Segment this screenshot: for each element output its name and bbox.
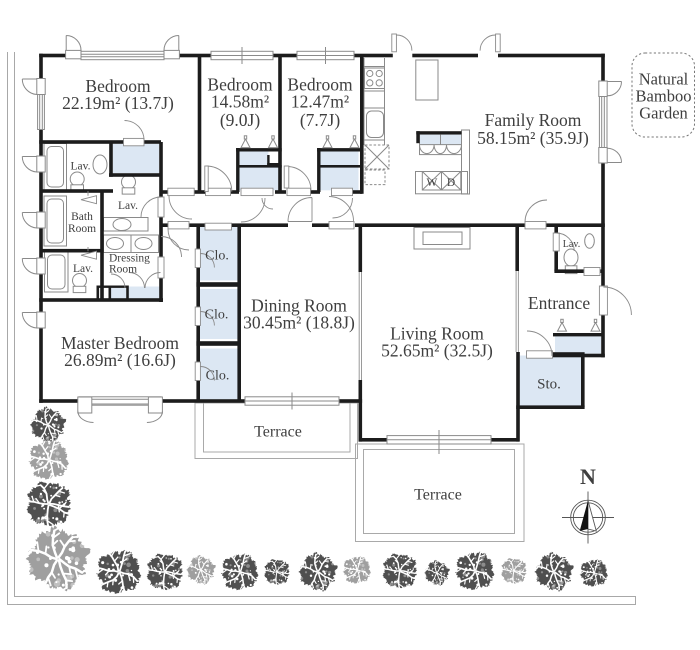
svg-text:(7.7J): (7.7J) (300, 110, 341, 130)
svg-text:Clo.: Clo. (205, 249, 229, 264)
svg-text:Clo.: Clo. (206, 369, 230, 384)
svg-text:Bath: Bath (71, 211, 93, 223)
svg-text:Clo.: Clo. (205, 308, 229, 323)
svg-text:22.19m² (13.7J): 22.19m² (13.7J) (62, 93, 174, 113)
svg-text:(9.0J): (9.0J) (220, 110, 261, 130)
svg-text:Terrace: Terrace (254, 424, 302, 441)
svg-text:Room: Room (109, 264, 137, 276)
svg-text:Family Room: Family Room (485, 110, 582, 130)
svg-text:N: N (580, 464, 596, 489)
svg-text:26.89m² (16.6J): 26.89m² (16.6J) (64, 350, 176, 370)
svg-text:Room: Room (68, 223, 96, 235)
svg-text:W: W (426, 177, 437, 189)
svg-text:Entrance: Entrance (528, 293, 590, 313)
svg-text:Terrace: Terrace (414, 487, 462, 504)
svg-text:30.45m² (18.8J): 30.45m² (18.8J) (243, 313, 355, 333)
svg-text:Garden: Garden (639, 104, 688, 123)
svg-text:Lav.: Lav. (118, 200, 138, 212)
svg-text:58.15m² (35.9J): 58.15m² (35.9J) (477, 128, 589, 148)
svg-text:Lav.: Lav. (563, 239, 580, 250)
svg-text:Sto.: Sto. (537, 377, 561, 393)
svg-text:Lav.: Lav. (70, 161, 90, 173)
svg-text:Lav.: Lav. (73, 263, 93, 275)
svg-text:D: D (447, 177, 455, 189)
svg-text:12.47m²: 12.47m² (291, 92, 349, 112)
svg-text:14.58m²: 14.58m² (211, 92, 269, 112)
svg-text:52.65m² (32.5J): 52.65m² (32.5J) (381, 341, 493, 361)
